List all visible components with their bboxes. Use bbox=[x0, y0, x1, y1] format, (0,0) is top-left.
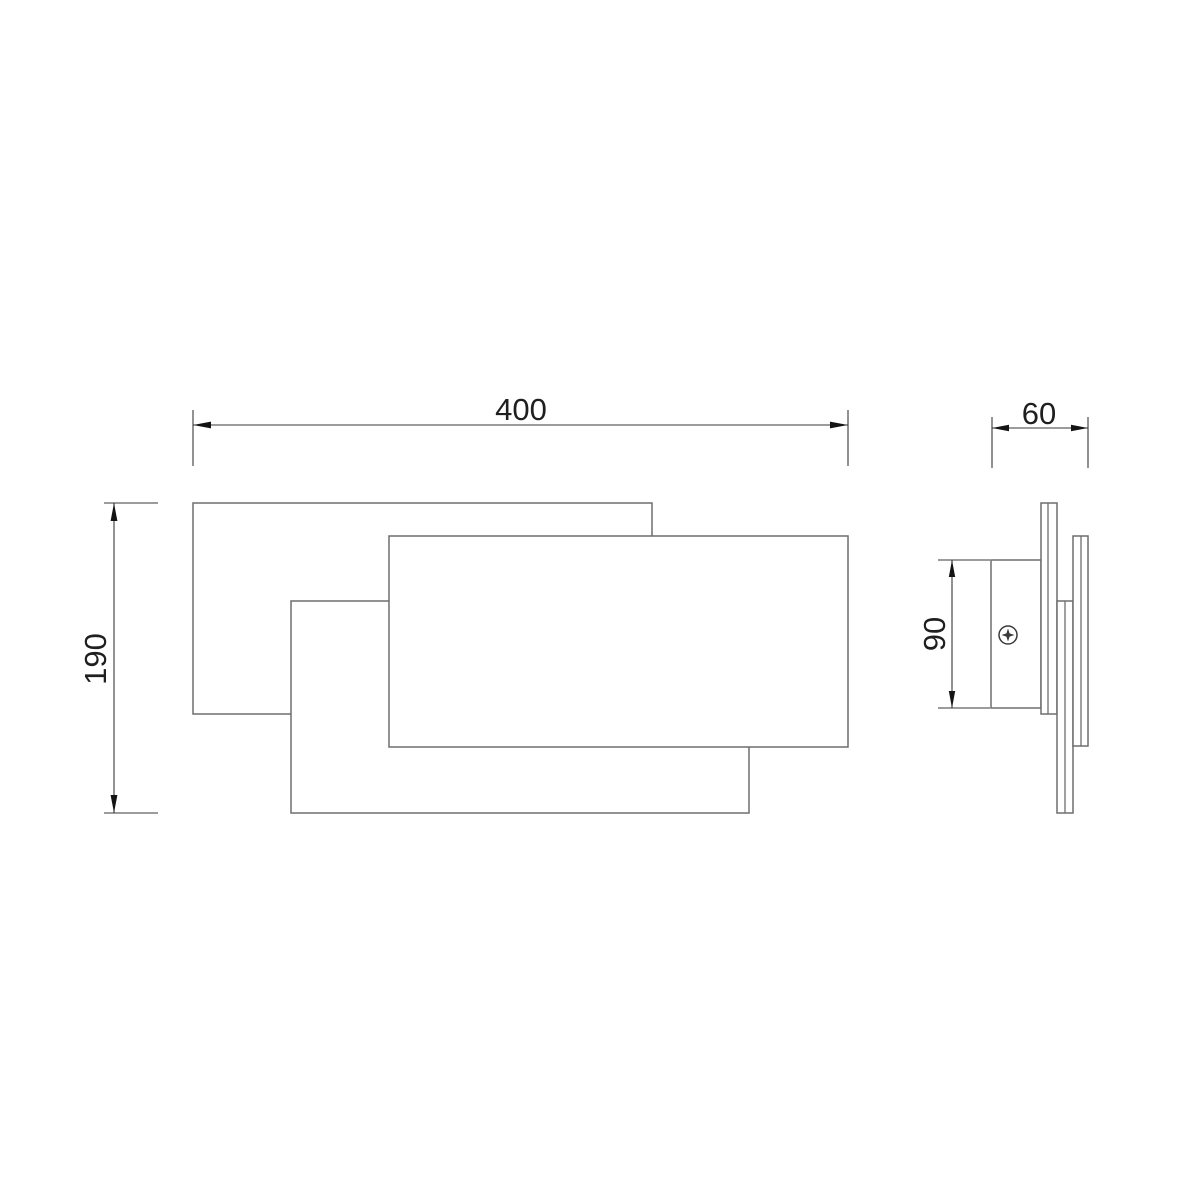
arrowhead-left-icon bbox=[193, 422, 211, 429]
arrowhead-left-icon bbox=[992, 425, 1009, 431]
depth-dimension-label: 60 bbox=[1022, 396, 1056, 431]
arrowhead-up-icon bbox=[111, 503, 118, 521]
back-panel-edge-outline bbox=[1041, 503, 1057, 714]
width-dimension: 400 bbox=[193, 392, 848, 466]
side-view: 60 90 bbox=[917, 396, 1088, 813]
front-view: 400 190 bbox=[78, 392, 848, 813]
arrowhead-right-icon bbox=[830, 422, 848, 429]
front-panel-edge bbox=[1073, 536, 1088, 746]
width-dimension-label: 400 bbox=[495, 392, 547, 427]
bottom-panel-edge bbox=[1057, 601, 1073, 813]
arrowhead-up-icon bbox=[949, 560, 955, 577]
technical-drawing-page: 400 190 bbox=[0, 0, 1200, 1200]
height-dimension-label: 190 bbox=[78, 633, 113, 685]
arrowhead-down-icon bbox=[949, 691, 955, 708]
plate-height-dimension-label: 90 bbox=[917, 617, 952, 651]
arrowhead-down-icon bbox=[111, 795, 118, 813]
back-panel-edge bbox=[1041, 503, 1057, 714]
plate-height-dimension: 90 bbox=[917, 560, 990, 708]
arrowhead-right-icon bbox=[1071, 425, 1088, 431]
screw-icon bbox=[999, 626, 1017, 644]
front-panel bbox=[389, 536, 848, 747]
depth-dimension: 60 bbox=[992, 396, 1088, 468]
wall-lamp-dimension-drawing: 400 190 bbox=[0, 0, 1200, 1200]
height-dimension: 190 bbox=[78, 503, 158, 813]
